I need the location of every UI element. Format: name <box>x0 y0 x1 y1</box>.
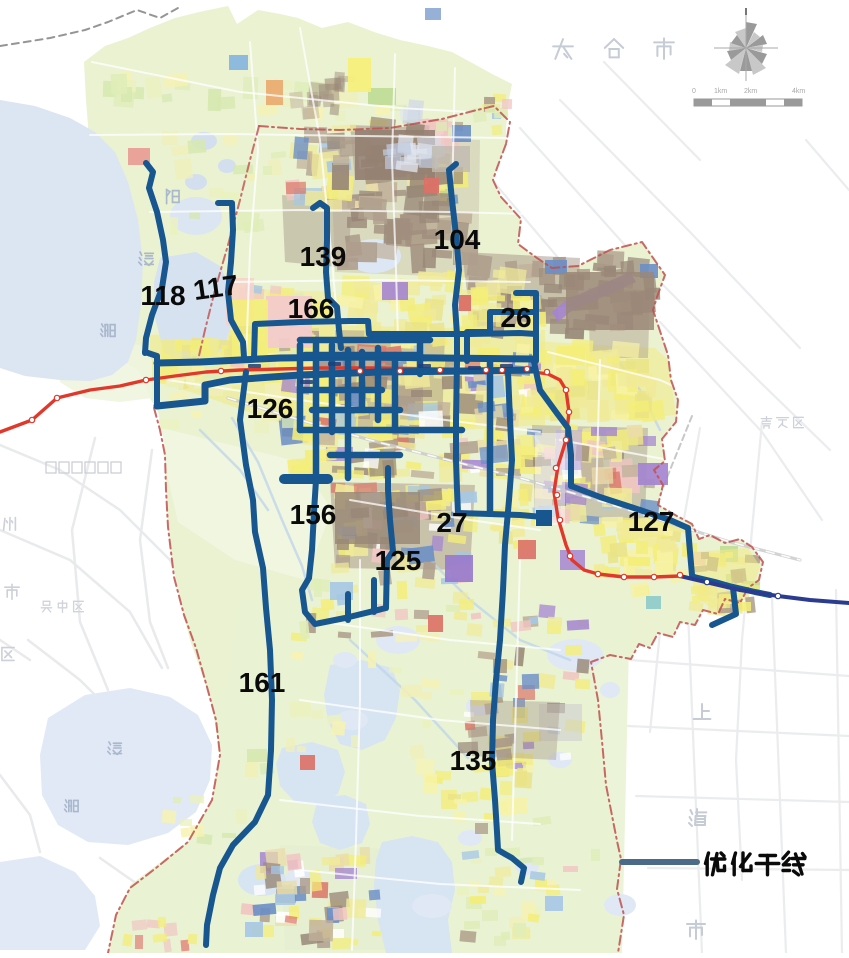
svg-text:125: 125 <box>375 545 422 576</box>
svg-text:161: 161 <box>239 667 286 698</box>
svg-text:26: 26 <box>500 302 531 333</box>
svg-text:126: 126 <box>247 393 294 424</box>
svg-text:135: 135 <box>450 745 497 776</box>
svg-text:27: 27 <box>436 507 467 538</box>
svg-text:118: 118 <box>140 280 185 311</box>
svg-text:117: 117 <box>191 269 240 306</box>
svg-text:166: 166 <box>288 293 335 324</box>
svg-text:0: 0 <box>692 88 696 95</box>
svg-text:4km: 4km <box>792 88 805 95</box>
svg-text:139: 139 <box>300 241 347 272</box>
svg-text:127: 127 <box>628 506 675 537</box>
svg-text:156: 156 <box>290 499 337 530</box>
svg-text:2km: 2km <box>744 88 757 95</box>
svg-text:104: 104 <box>434 224 481 255</box>
svg-text:1km: 1km <box>714 88 727 95</box>
